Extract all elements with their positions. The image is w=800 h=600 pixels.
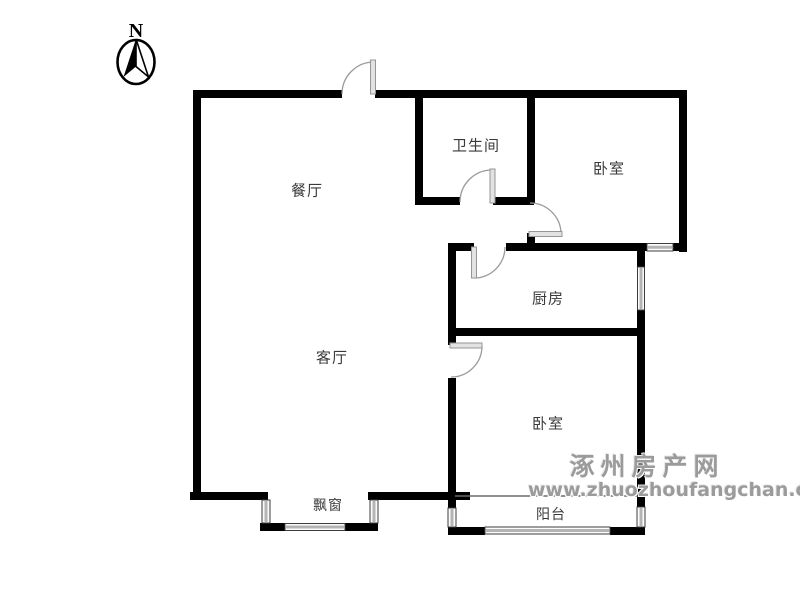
door-kitchen-icon [472, 247, 506, 278]
window-bay-bottom-icon [285, 524, 345, 531]
room-label-bay-window: 飘窗 [313, 495, 343, 515]
wall-bay-corner-left [260, 523, 285, 531]
window-balcony-left-icon [448, 508, 456, 527]
door-bedroom-bottom-icon [450, 343, 482, 377]
wall-bay-corner-right [345, 523, 378, 531]
wall-top-right [375, 90, 687, 98]
wall-left [193, 90, 201, 500]
watermark: 涿州房产网 www.zhuozhoufangchan.com [528, 454, 766, 501]
watermark-site-url: www.zhuozhoufangchan.com [528, 481, 766, 501]
wall-bedroom-top-bottom-right [673, 243, 687, 251]
room-label-bedroom-bottom: 卧室 [532, 413, 564, 434]
watermark-site-name: 涿州房产网 [528, 454, 766, 480]
door-bathroom-icon [460, 169, 495, 203]
room-label-kitchen: 厨房 [532, 288, 564, 309]
floorplan-page: N [0, 0, 800, 600]
wall-balcony-corner-right [610, 527, 645, 535]
window-balcony-right-icon [637, 507, 645, 527]
floorplan-drawing: N [0, 0, 800, 600]
wall-bathroom-bedroom-divider [527, 98, 535, 203]
wall-divider-lower [448, 378, 456, 508]
wall-kitchen-right-upper [637, 251, 645, 267]
room-label-bathroom: 卫生间 [452, 135, 500, 156]
room-label-bedroom-top: 卧室 [593, 158, 625, 179]
wall-bathroom-left [415, 98, 423, 205]
room-label-balcony: 阳台 [536, 504, 566, 524]
room-label-dining: 餐厅 [291, 180, 323, 201]
window-bay-right-icon [370, 500, 378, 523]
wall-living-bottom-right [368, 492, 470, 500]
wall-right-bedroom-top [679, 90, 687, 252]
wall-living-bottom-left [190, 492, 268, 500]
window-kitchen-right-icon [638, 267, 645, 310]
wall-bathroom-bottom-a [415, 197, 460, 205]
door-bedroom-top-icon [529, 203, 562, 237]
wall-balcony-corner-left [448, 527, 485, 535]
window-balcony-bottom-icon [485, 527, 610, 534]
wall-top-left [193, 90, 342, 98]
compass-north-label: N [129, 20, 144, 42]
wall-kitchen-bottom [448, 328, 645, 336]
door-entrance-icon [342, 60, 376, 94]
room-label-living: 客厅 [316, 347, 348, 368]
wall-kitchen-top-a [448, 243, 474, 251]
window-bay-left-icon [262, 500, 270, 523]
window-bedroom-top-icon [647, 244, 673, 252]
north-compass: N [118, 20, 155, 84]
wall-kitchen-top-b [506, 243, 647, 251]
wall-divider-upper [448, 251, 456, 345]
